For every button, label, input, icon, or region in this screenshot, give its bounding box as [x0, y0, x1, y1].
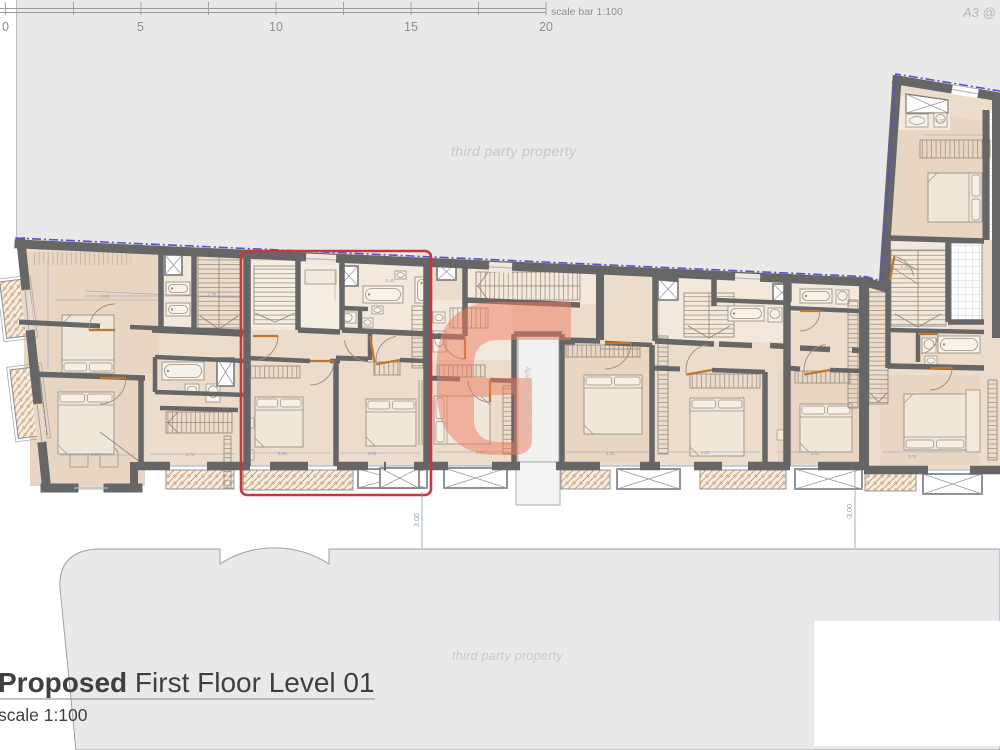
svg-text:scale 1:100: scale 1:100: [0, 705, 88, 725]
svg-text:0: 0: [2, 20, 9, 34]
svg-text:A3 @: A3 @: [962, 5, 996, 20]
svg-text:3.00: 3.00: [936, 118, 945, 123]
svg-text:2.40: 2.40: [386, 278, 395, 283]
svg-text:10: 10: [269, 20, 283, 34]
svg-text:3.80: 3.80: [101, 294, 110, 299]
svg-text:third party property: third party property: [452, 649, 563, 663]
svg-text:scale bar 1:100: scale bar 1:100: [551, 6, 623, 18]
svg-text:3.26: 3.26: [368, 451, 377, 456]
svg-text:1.78: 1.78: [208, 292, 217, 297]
svg-text:4.28: 4.28: [701, 450, 710, 455]
svg-text:20: 20: [539, 20, 553, 34]
svg-text:3.00: 3.00: [414, 513, 421, 527]
svg-text:5: 5: [137, 20, 144, 34]
svg-text:-3.00: -3.00: [847, 504, 854, 520]
svg-text:3.28: 3.28: [278, 451, 287, 456]
svg-text:15: 15: [404, 20, 418, 34]
svg-text:4.37: 4.37: [91, 452, 100, 457]
svg-text:3.00: 3.00: [908, 454, 917, 459]
svg-text:third party property: third party property: [523, 365, 532, 433]
svg-text:2.72: 2.72: [186, 452, 195, 457]
svg-text:Proposed First Floor Level 01: Proposed First Floor Level 01: [0, 667, 375, 698]
svg-text:third party property: third party property: [451, 143, 577, 159]
